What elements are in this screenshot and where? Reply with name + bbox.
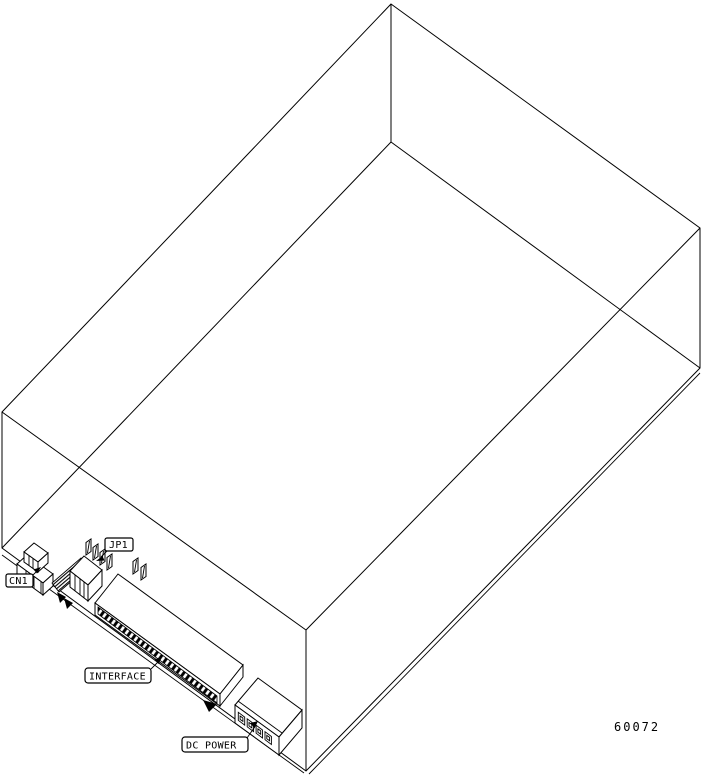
bottom-rim-right-line [309, 373, 700, 774]
interface-label: INTERFACE [89, 672, 146, 683]
enclosure-outline [2, 4, 700, 771]
jp1-callout: JP1 [96, 538, 133, 561]
hidden-bottom-right-edge [391, 142, 700, 368]
jp1-label: JP1 [109, 540, 128, 551]
hardware-rear-view-diagram: CN1 JP1 INTERFACE DC POWER 60072 [0, 0, 701, 779]
dc-power-label: DC POWER [186, 741, 237, 752]
figure-number: 60072 [614, 720, 660, 734]
hidden-bottom-left-edge [2, 142, 391, 548]
interface-edge-connector [95, 574, 243, 712]
enclosure-wireframe [2, 4, 700, 774]
top-face-front-left-edge [2, 412, 306, 630]
cn1-label: CN1 [9, 576, 28, 587]
figure-page: CN1 JP1 INTERFACE DC POWER 60072 [0, 0, 701, 779]
interface-callout: INTERFACE [85, 657, 162, 683]
